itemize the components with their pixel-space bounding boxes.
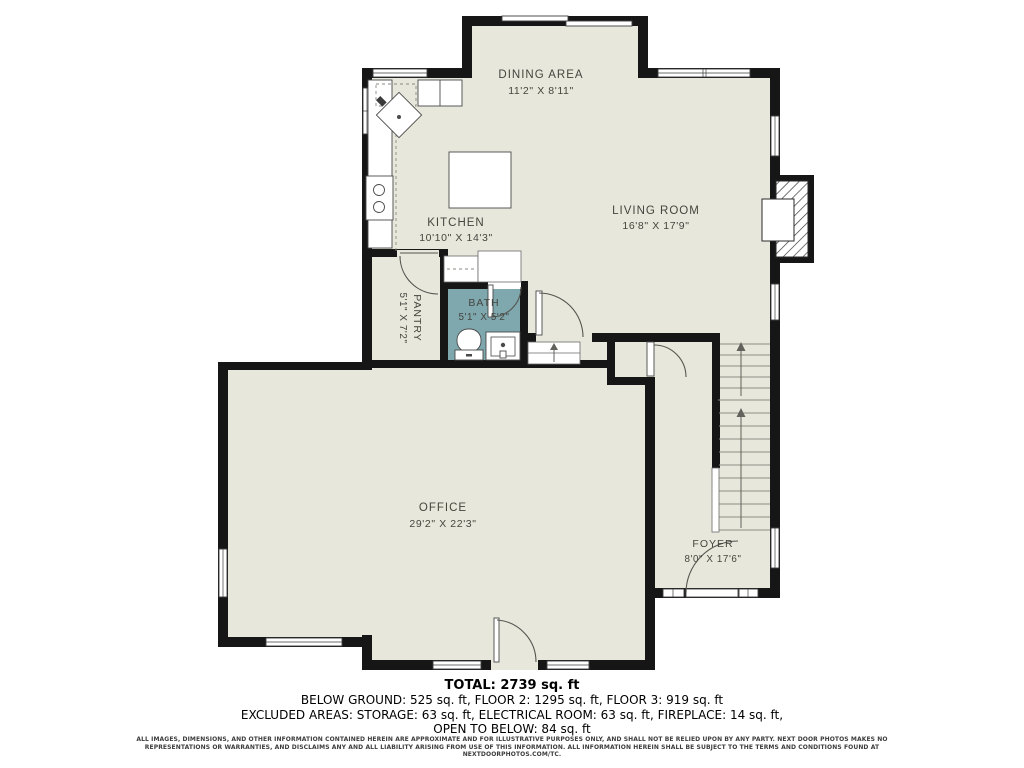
svg-text:BATH: BATH: [468, 297, 499, 309]
sidelite-window-icon: [739, 589, 758, 597]
bath-fixtures: [455, 329, 520, 360]
window-icon: [266, 638, 342, 646]
open-below-text: OPEN TO BELOW: 84 sq. ft: [0, 722, 1024, 737]
svg-text:OFFICE: OFFICE: [419, 502, 467, 514]
svg-text:5'1" X 5'2": 5'1" X 5'2": [458, 312, 509, 323]
total-area-text: TOTAL: 2739 sq. ft: [0, 678, 1024, 693]
vanity-sink-icon: [486, 332, 520, 360]
closet-fixtures: [444, 251, 521, 282]
window-icon: [771, 116, 779, 156]
svg-text:29'2" X 22'3": 29'2" X 22'3": [409, 518, 476, 530]
floors-area-text: BELOW GROUND: 525 sq. ft, FLOOR 2: 1295 …: [0, 693, 1024, 708]
sidelite-window-icon: [663, 589, 684, 597]
svg-text:PANTRY: PANTRY: [411, 294, 423, 342]
stair-railing: [712, 468, 719, 532]
svg-text:11'2" X 8'11": 11'2" X 8'11": [508, 85, 574, 97]
svg-text:8'0" X 17'6": 8'0" X 17'6": [684, 554, 741, 565]
stove-icon: [366, 176, 393, 220]
svg-text:LIVING ROOM: LIVING ROOM: [612, 205, 700, 217]
window-icon: [771, 528, 779, 568]
floor-plan-drawing: DINING AREA 11'2" X 8'11" KITCHEN 10'10"…: [0, 0, 1024, 768]
kitchen-island-icon: [449, 152, 511, 208]
window-icon: [658, 69, 750, 77]
disclaimer: ALL IMAGES, DIMENSIONS, AND OTHER INFORM…: [127, 736, 897, 759]
window-icon: [219, 549, 227, 597]
window-icon: [373, 69, 427, 77]
svg-text:DINING AREA: DINING AREA: [498, 69, 583, 81]
window-icon: [433, 661, 481, 669]
floor-plan-page: DINING AREA 11'2" X 8'11" KITCHEN 10'10"…: [0, 0, 1024, 768]
svg-text:16'8" X 17'9": 16'8" X 17'9": [622, 220, 689, 232]
svg-text:5'1" X 7'2": 5'1" X 7'2": [397, 292, 408, 343]
window-icon: [771, 284, 779, 320]
window-icon: [547, 661, 589, 669]
svg-text:10'10" X 14'3": 10'10" X 14'3": [419, 232, 493, 244]
svg-text:KITCHEN: KITCHEN: [427, 217, 484, 229]
area-summary: TOTAL: 2739 sq. ft BELOW GROUND: 525 sq.…: [0, 678, 1024, 737]
excluded-area-text: EXCLUDED AREAS: STORAGE: 63 sq. ft, ELEC…: [0, 708, 1024, 723]
step-landing-icon: [528, 342, 580, 364]
disclaimer-line: ALL IMAGES, DIMENSIONS, AND OTHER INFORM…: [136, 736, 775, 743]
svg-text:FOYER: FOYER: [692, 538, 733, 550]
toilet-icon: [455, 329, 483, 360]
